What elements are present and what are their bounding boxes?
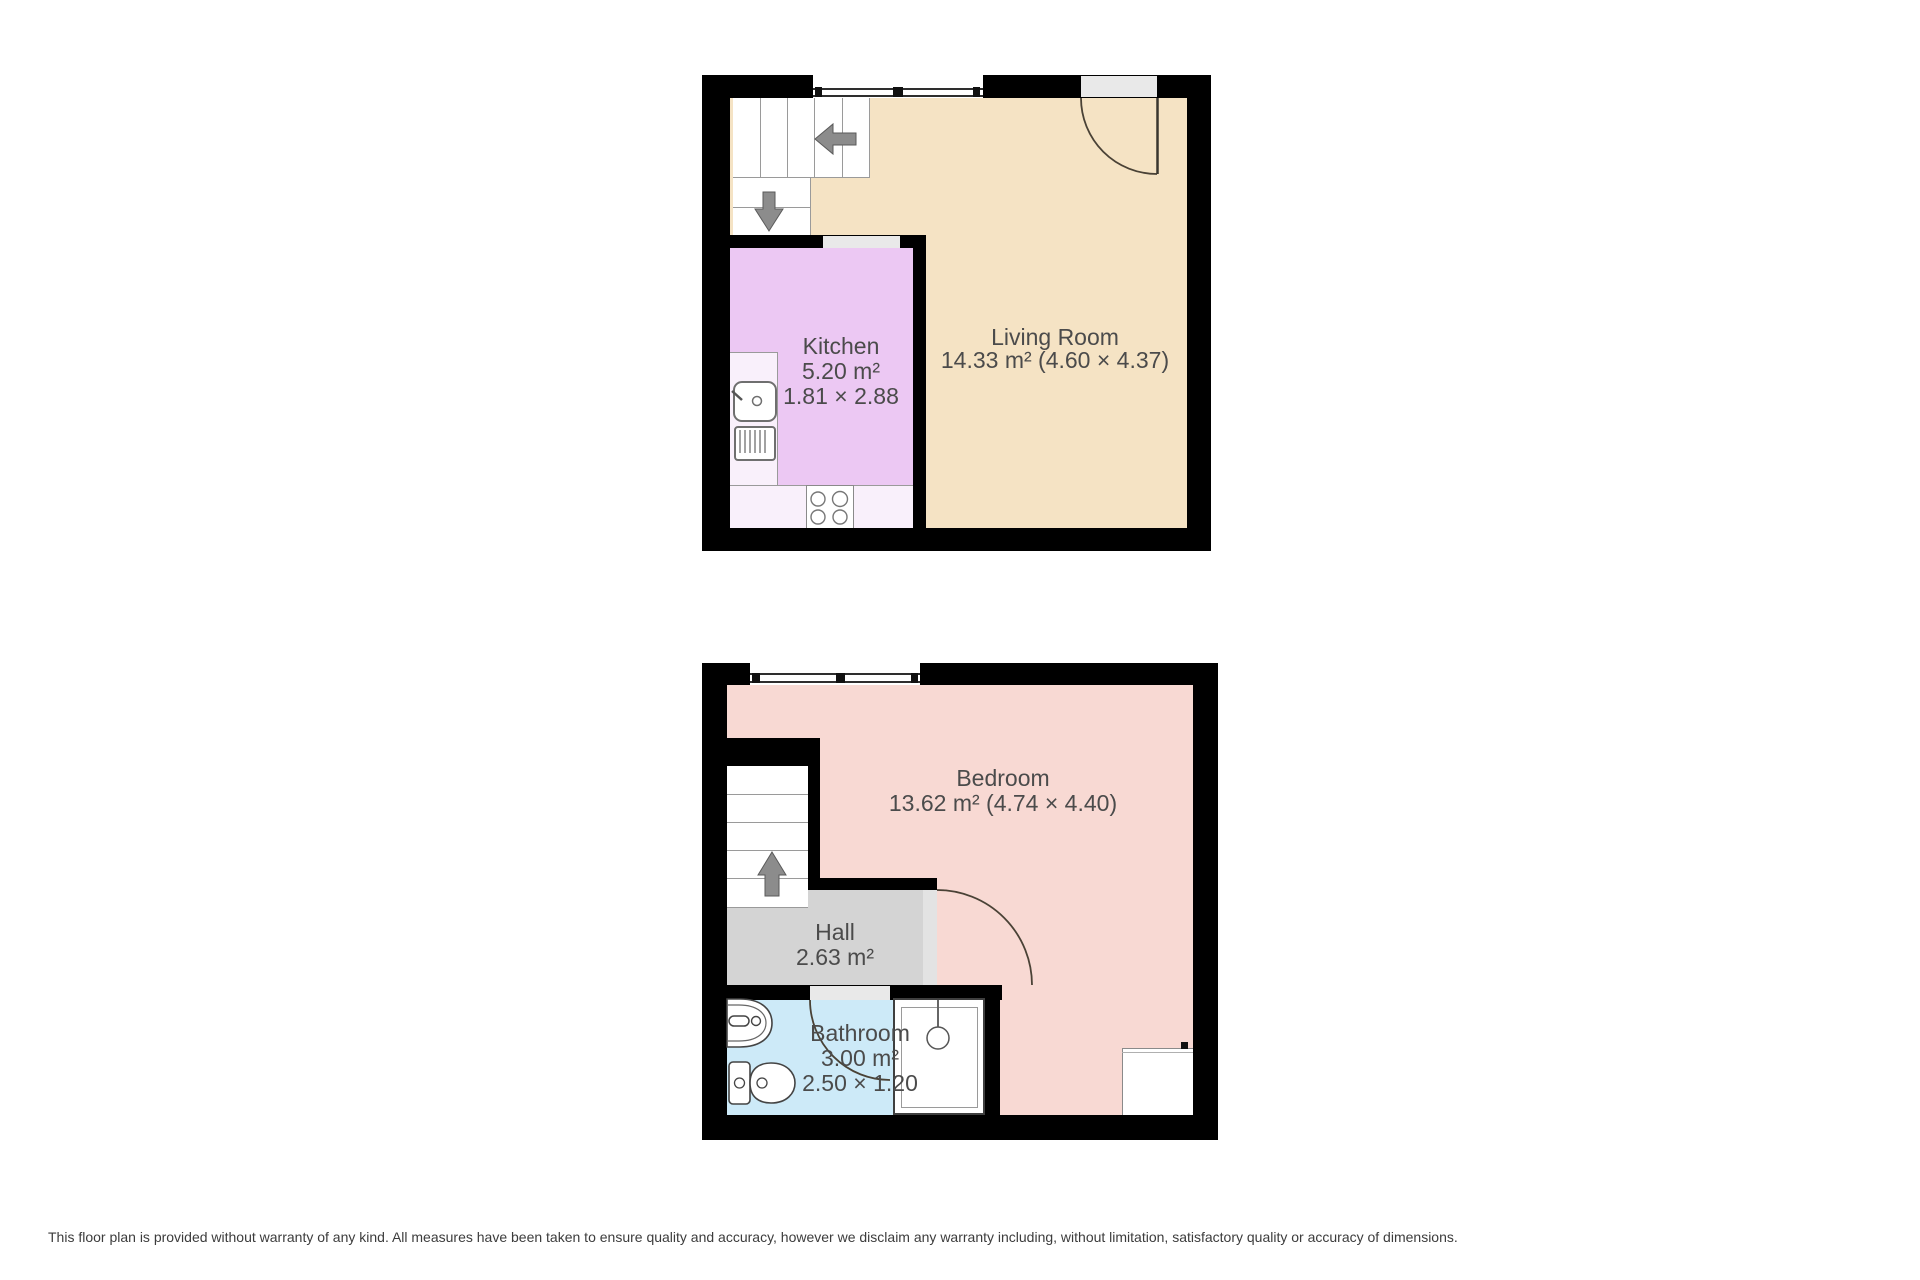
kitchen-sink	[733, 381, 777, 422]
stair-tread-line	[727, 850, 808, 851]
bedroom-label: Bedroom 13.62 m² (4.74 × 4.40)	[889, 766, 1117, 816]
stairs-edge-line	[869, 98, 870, 178]
room-area: 2.63 m²	[796, 945, 874, 970]
hall-top-wall	[808, 878, 937, 890]
stair-tread-line	[727, 878, 808, 879]
room-area: 5.20 m²	[783, 359, 899, 384]
stairs-right-wall	[808, 738, 820, 888]
stair-tread-line	[842, 98, 843, 177]
bathroom-right-wall	[985, 985, 1000, 1115]
window-tick	[893, 87, 903, 97]
floorplan-page: Kitchen 5.20 m² 1.81 × 2.88 Living Room …	[0, 0, 1920, 1280]
room-area: 3.00 m²	[802, 1046, 918, 1071]
kitchen-right-wall	[913, 235, 926, 528]
entry-door-opening-upper	[1081, 76, 1157, 97]
upper-left-wall	[702, 75, 730, 551]
window-tick	[911, 673, 918, 683]
landing-line	[733, 207, 810, 208]
lower-left-wall	[702, 663, 727, 1140]
kitchen-opening	[823, 236, 900, 248]
bathroom-door-opening	[810, 986, 890, 1000]
hall-label: Hall 2.63 m²	[796, 920, 874, 970]
upper-bottom-wall	[702, 528, 1211, 551]
stairs-upper	[733, 98, 870, 177]
room-area-dims: 13.62 m² (4.74 × 4.40)	[889, 791, 1117, 816]
recess-inner-line	[1122, 1052, 1193, 1053]
room-dims: 1.81 × 2.88	[783, 384, 899, 409]
room-area-dims: 14.33 m² (4.60 × 4.37)	[941, 349, 1169, 372]
room-name: Living Room	[941, 326, 1169, 349]
window-tick	[973, 87, 980, 97]
kitchen-label: Kitchen 5.20 m² 1.81 × 2.88	[783, 334, 899, 409]
room-dims: 2.50 × 1.20	[802, 1071, 918, 1096]
lower-bottom-wall	[702, 1115, 1218, 1140]
window-glazing-line	[750, 673, 920, 675]
room-name: Bathroom	[802, 1021, 918, 1046]
kitchen-sink-drainer	[734, 426, 776, 461]
stair-tread-line	[760, 98, 761, 177]
bathroom-label: Bathroom 3.00 m² 2.50 × 1.20	[802, 1021, 918, 1096]
recess-tick	[1181, 1042, 1188, 1049]
window-lower	[750, 663, 920, 685]
living-room-label: Living Room 14.33 m² (4.60 × 4.37)	[941, 326, 1169, 372]
stair-tread-line	[814, 98, 815, 177]
window-tick	[836, 673, 845, 683]
disclaimer-text: This floor plan is provided without warr…	[48, 1229, 1458, 1245]
bedroom-door-leaf	[923, 890, 937, 985]
stair-tread-line	[727, 822, 808, 823]
room-name: Hall	[796, 920, 874, 945]
window-tick	[752, 673, 760, 683]
landing-edge-line	[810, 178, 811, 235]
kitchen-hob	[806, 485, 854, 530]
stair-tread-line	[787, 98, 788, 177]
lower-right-wall	[1193, 663, 1218, 1140]
room-name: Bedroom	[889, 766, 1117, 791]
stairs-lower	[727, 766, 808, 908]
window-upper	[813, 75, 983, 98]
bedroom-recess	[1122, 1048, 1194, 1118]
window-tick	[815, 87, 822, 97]
stair-tread-line	[727, 794, 808, 795]
stairs-edge-line	[727, 907, 808, 908]
upper-right-wall	[1187, 75, 1211, 551]
room-name: Kitchen	[783, 334, 899, 359]
window-glazing-line	[750, 681, 920, 683]
